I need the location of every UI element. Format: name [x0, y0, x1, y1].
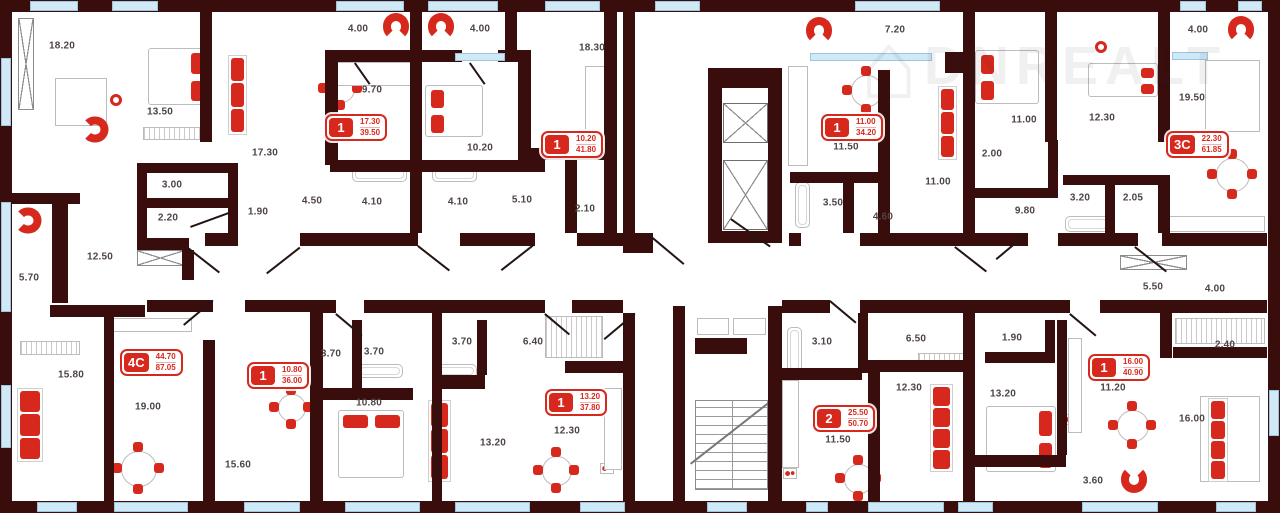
wall-segment [572, 300, 623, 313]
chair [533, 465, 543, 475]
room-area-label: 2.40 [1215, 340, 1235, 351]
wall-segment [623, 233, 653, 253]
apartment-badge[interactable]: 110.2041.80 [541, 131, 603, 158]
sofa-cushion [941, 89, 954, 110]
door-swing [418, 245, 450, 271]
dining-table [1108, 401, 1156, 449]
red-horseshoe-icon [806, 17, 832, 44]
apartment-badge[interactable]: 4C44.7087.05 [120, 349, 183, 376]
kitchen-counter [112, 318, 192, 332]
wall-segment [1058, 233, 1138, 246]
door-swing [190, 212, 230, 228]
wall-segment [460, 233, 535, 246]
room-area-label: 6.40 [523, 337, 543, 348]
wall-segment [768, 306, 782, 501]
room-area-label: 10.80 [356, 398, 382, 409]
apartment-type: 1 [251, 366, 275, 385]
bed-pillow [375, 415, 400, 428]
room-area-label: 15.80 [58, 370, 84, 381]
apartment-type: 4C [124, 353, 149, 372]
room-area-label: 9.70 [362, 85, 382, 96]
furniture-outline [733, 318, 766, 335]
apartment-area-total: 87.05 [156, 363, 176, 373]
sofa-cushion [933, 408, 950, 427]
room-area-label: 3.70 [452, 337, 472, 348]
window [810, 53, 932, 61]
wall-segment [518, 50, 531, 160]
wall-segment [245, 300, 310, 312]
dining-table [269, 385, 313, 429]
window [707, 502, 747, 512]
wardrobe [143, 127, 207, 140]
apartment-areas: 17.3039.50 [355, 116, 385, 139]
room-area-label: 12.50 [87, 252, 113, 263]
apartment-areas: 13.2037.80 [575, 391, 605, 414]
wall-segment [137, 198, 235, 208]
window [806, 502, 828, 512]
bed-pillow [981, 81, 994, 100]
window [1082, 502, 1158, 512]
bed-pillow [1141, 84, 1154, 94]
apartment-type: 1 [549, 393, 573, 412]
sofa-cushion [20, 438, 40, 459]
wardrobe [20, 341, 80, 355]
sofa-cushion [231, 58, 244, 81]
wall-segment [477, 320, 487, 375]
wall-segment [868, 360, 968, 372]
room-area-label: 4.50 [302, 196, 322, 207]
wall-segment [604, 12, 617, 233]
window [114, 502, 188, 512]
sofa-cushion [1211, 441, 1225, 459]
wall-segment [300, 233, 418, 246]
wall-segment [868, 372, 880, 501]
room-area-label: 5.70 [19, 273, 39, 284]
apartment-area-living: 11.00 [856, 117, 876, 128]
room-area-label: 4.00 [348, 24, 368, 35]
floor-plan: 18.2013.5017.303.002.201.9012.505.704.00… [0, 0, 1280, 513]
apartment-area-living: 13.20 [580, 392, 600, 403]
kitchen-counter [1068, 338, 1082, 433]
chair [133, 484, 143, 494]
wall-segment [410, 0, 422, 233]
apartment-areas: 10.8036.00 [277, 364, 307, 387]
bathtub [1065, 216, 1110, 232]
chair [1127, 401, 1137, 411]
bed [425, 85, 483, 137]
window [336, 1, 404, 11]
sofa-cushion [1211, 421, 1225, 439]
room-area-label: 11.20 [1100, 383, 1125, 394]
chair [1247, 169, 1257, 179]
wall-segment [708, 231, 782, 243]
door-swing [501, 245, 533, 271]
apartment-area-living: 44.70 [156, 352, 176, 363]
bathtub [357, 364, 403, 378]
wall-segment [673, 306, 685, 501]
red-horseshoe-icon [15, 208, 42, 234]
chair [1146, 420, 1156, 430]
stairs [695, 400, 768, 490]
window [655, 1, 700, 11]
apartment-area-total: 39.50 [360, 128, 380, 138]
room-area-label: 2.20 [158, 213, 178, 224]
sofa-cushion [231, 109, 244, 132]
room-area-label: 4.10 [362, 197, 382, 208]
sofa-cushion [1211, 461, 1225, 479]
window [244, 502, 300, 512]
room-area-label: 9.80 [1015, 206, 1035, 217]
bed-pillow [343, 415, 368, 428]
window [1216, 502, 1256, 512]
door-swing [1070, 313, 1097, 336]
bathtub [795, 182, 810, 228]
room-area-label: 3.70 [364, 347, 384, 358]
door-swing [469, 62, 485, 84]
apartment-area-living: 10.20 [576, 134, 596, 145]
apartment-areas: 44.7087.05 [151, 351, 181, 374]
apartment-type: 3C [1170, 135, 1195, 154]
wall-segment [858, 313, 868, 373]
wall-segment [782, 300, 830, 313]
apartment-area-living: 25.50 [848, 408, 868, 419]
room-area-label: 15.60 [225, 460, 251, 471]
apartment-badge[interactable]: 110.8036.00 [247, 362, 309, 389]
window [345, 502, 420, 512]
wall-segment [1158, 175, 1170, 233]
wall-segment [860, 233, 960, 246]
bed [1088, 63, 1158, 97]
sofa-cushion [20, 414, 40, 435]
wall-segment [440, 375, 485, 389]
wall-segment [843, 172, 854, 233]
apartment-badge[interactable]: 117.3039.50 [325, 114, 387, 141]
bed-pillow [981, 55, 994, 74]
furniture-outline [697, 318, 729, 335]
room-area-label: 12.30 [554, 426, 580, 437]
window [455, 53, 505, 61]
apartment-area-total: 40.90 [1123, 368, 1143, 378]
wall-segment [137, 238, 189, 250]
wall-segment [1045, 12, 1057, 142]
window [30, 1, 78, 11]
wall-segment [203, 340, 215, 501]
apartment-type: 1 [1092, 358, 1116, 377]
window [580, 502, 625, 512]
apartment-areas: 25.5050.70 [843, 407, 873, 430]
table-top [542, 456, 572, 486]
chair [1127, 439, 1137, 449]
room-area-label: 3.10 [812, 337, 832, 348]
wall-segment [1162, 233, 1267, 246]
room-area-label: 17.30 [252, 148, 278, 159]
wall-segment [790, 172, 878, 183]
room-area-label: 3.70 [321, 349, 341, 360]
room-area-label: 3.60 [1083, 476, 1103, 487]
bathtub [787, 327, 802, 373]
wall-segment [1100, 300, 1267, 313]
furniture-outline [1205, 60, 1260, 132]
chair [269, 402, 279, 412]
room-area-label: 18.30 [579, 43, 605, 54]
table-top [1216, 158, 1250, 192]
room-area-label: 12.30 [896, 383, 922, 394]
wall-segment [963, 313, 975, 501]
room-area-label: 11.50 [833, 142, 858, 153]
window [1269, 390, 1279, 436]
kitchen-counter [782, 380, 799, 468]
closet-crossed [18, 18, 34, 110]
room-area-label: 10.20 [467, 143, 493, 154]
dining-table [112, 442, 164, 494]
room-area-label: 5.10 [512, 195, 532, 206]
apartment-area-living: 16.00 [1123, 357, 1143, 368]
red-horseshoe-icon [383, 13, 409, 40]
chair [551, 483, 561, 493]
room-area-label: 1.90 [248, 207, 268, 218]
apartment-badge[interactable]: 111.0034.20 [821, 114, 883, 141]
wall-segment [52, 193, 68, 303]
sofa-cushion [933, 450, 950, 469]
window [1238, 1, 1262, 11]
door-swing [830, 300, 857, 323]
window [958, 502, 993, 512]
wall-segment [577, 233, 624, 246]
table-top [278, 394, 306, 422]
apartment-area-total: 36.00 [282, 376, 302, 386]
apartment-area-total: 37.80 [580, 403, 600, 413]
wall-segment [708, 140, 722, 160]
room-area-label: 18.20 [49, 41, 75, 52]
room-area-label: 16.00 [1179, 414, 1205, 425]
bed [148, 48, 208, 105]
watermark: ⌂ DNREALT [860, 18, 1227, 114]
apartment-area-total: 61.85 [1202, 145, 1222, 155]
bed [338, 410, 404, 478]
room-area-label: 4.10 [448, 197, 468, 208]
door-swing [955, 246, 987, 272]
chair [1207, 169, 1217, 179]
room-area-label: 2.05 [1123, 193, 1143, 204]
apartment-type: 1 [545, 135, 569, 154]
room-area-label: 4.00 [1188, 25, 1208, 36]
window [1172, 52, 1208, 60]
sofa-cushion [933, 429, 950, 448]
wall-segment [505, 8, 517, 52]
room-area-label: 13.20 [990, 389, 1016, 400]
chair [133, 442, 143, 452]
apartment-areas: 16.0040.90 [1118, 356, 1148, 379]
apartment-badge[interactable]: 3C22.3061.85 [1166, 131, 1229, 158]
chair [551, 447, 561, 457]
room-area-label: 2.10 [575, 204, 595, 215]
wall-segment [945, 52, 963, 73]
window [112, 1, 158, 11]
room-area-label: 2.00 [982, 149, 1002, 160]
chair [569, 465, 579, 475]
wall-segment [789, 233, 801, 246]
wall-segment [325, 50, 338, 165]
wall-segment [975, 455, 1066, 467]
sofa [930, 384, 953, 472]
sofa-cushion [20, 391, 40, 412]
room-area-label: 4.60 [873, 212, 893, 223]
kitchen-counter [1165, 216, 1265, 232]
chair [1227, 189, 1237, 199]
sofa [228, 55, 247, 135]
bed-pillow [431, 90, 444, 108]
wall-segment [1105, 180, 1115, 233]
chair [861, 104, 871, 114]
desk-chair [110, 94, 122, 106]
room-area-label: 11.00 [1011, 115, 1036, 126]
sofa-cushion [231, 83, 244, 106]
window [855, 1, 940, 11]
table-top [1117, 410, 1149, 442]
room-area-label: 3.50 [823, 198, 843, 209]
closet-crossed [137, 250, 184, 266]
room-area-label: 19.50 [1179, 93, 1205, 104]
apartment-areas: 11.0034.20 [851, 116, 881, 139]
chair [853, 455, 863, 465]
room-area-label: 11.50 [825, 435, 850, 446]
wall-segment [623, 12, 635, 245]
desk-chair [1095, 41, 1107, 53]
wall-segment [1048, 140, 1058, 198]
wall-segment [147, 300, 213, 312]
apartment-area-total: 50.70 [848, 419, 868, 429]
wall-segment [768, 68, 782, 243]
wall-segment [565, 160, 577, 233]
sofa [938, 86, 957, 160]
apartment-area-living: 22.30 [1202, 134, 1222, 145]
room-area-label: 3.00 [162, 180, 182, 191]
wall-segment [0, 0, 1280, 12]
kitchen-counter [788, 66, 808, 166]
wall-segment [364, 300, 432, 313]
wall-segment [1158, 12, 1170, 142]
window [545, 1, 600, 11]
window [428, 1, 498, 11]
chair [842, 85, 852, 95]
red-horseshoe-icon [1121, 466, 1147, 493]
room-area-label: 4.00 [470, 24, 490, 35]
wall-segment [782, 368, 862, 380]
wall-segment [963, 12, 975, 233]
wall-segment [565, 361, 623, 373]
window [1, 58, 11, 126]
wall-segment [0, 193, 80, 204]
window [37, 502, 77, 512]
bed-pillow [431, 115, 444, 133]
sofa-cushion [933, 387, 950, 406]
chair [286, 419, 296, 429]
room-area-label: 13.20 [480, 438, 506, 449]
red-horseshoe-icon [428, 13, 454, 40]
apartment-area-living: 10.80 [282, 365, 302, 376]
window [868, 502, 944, 512]
wall-segment [1045, 320, 1055, 363]
red-horseshoe-icon [1228, 16, 1254, 43]
wall-segment [975, 188, 1055, 198]
wall-segment [1160, 313, 1172, 358]
room-area-label: 7.20 [885, 25, 905, 36]
wall-segment [50, 305, 145, 317]
bed-pillow [1141, 68, 1154, 78]
apartment-type: 2 [817, 409, 841, 428]
wall-segment [860, 300, 963, 313]
apartment-areas: 22.3061.85 [1197, 133, 1227, 156]
room-area-label: 4.00 [1205, 284, 1225, 295]
apartment-type: 1 [825, 118, 849, 137]
wall-segment [963, 300, 1070, 313]
room-area-label: 3.20 [1070, 193, 1090, 204]
room-area-label: 13.50 [147, 107, 173, 118]
wall-segment [328, 50, 413, 62]
room-area-label: 6.50 [906, 334, 926, 345]
room-area-label: 11.00 [925, 177, 950, 188]
wall-segment [432, 313, 442, 501]
bed [975, 50, 1039, 104]
wall-segment [205, 233, 238, 246]
apartment-type: 1 [329, 118, 353, 137]
table-top [121, 451, 157, 487]
wall-segment [1057, 320, 1067, 455]
room-area-label: 5.50 [1143, 282, 1163, 293]
wall-segment [228, 163, 238, 244]
chair [154, 463, 164, 473]
door-swing [266, 247, 300, 274]
wall-segment [310, 300, 336, 313]
wall-segment [137, 163, 237, 173]
sofa-cushion [941, 136, 954, 157]
window [1, 385, 11, 448]
dining-table [533, 447, 579, 493]
wall-segment [432, 300, 545, 313]
chair [1108, 420, 1118, 430]
wall-segment [182, 250, 194, 280]
apartment-area-total: 41.80 [576, 145, 596, 155]
window [1, 202, 11, 312]
kitchen-counter [331, 62, 411, 86]
wall-segment [200, 12, 212, 142]
apartment-areas: 10.2041.80 [571, 133, 601, 156]
chair [853, 491, 863, 501]
wall-segment [104, 317, 114, 501]
chair [835, 473, 845, 483]
apartment-badge[interactable]: 116.0040.90 [1088, 354, 1150, 381]
sofa [1208, 398, 1228, 482]
window [455, 502, 530, 512]
sofa-cushion [941, 112, 954, 133]
wall-segment [695, 338, 747, 354]
wall-segment [623, 313, 635, 501]
sofa-cushion [1211, 401, 1225, 419]
stove-icon [783, 468, 797, 479]
wall-segment [950, 233, 1028, 246]
window [1180, 1, 1206, 11]
apartment-badge[interactable]: 225.5050.70 [813, 405, 875, 432]
bed-pillow [1039, 411, 1052, 436]
apartment-area-total: 34.20 [856, 128, 876, 138]
wall-segment [1268, 0, 1280, 513]
wall-segment [310, 313, 323, 501]
elevator-shaft [723, 103, 768, 143]
apartment-badge[interactable]: 113.2037.80 [545, 389, 607, 416]
door-swing [648, 233, 685, 264]
room-area-label: 1.90 [1002, 333, 1022, 344]
wall-segment [330, 160, 545, 172]
